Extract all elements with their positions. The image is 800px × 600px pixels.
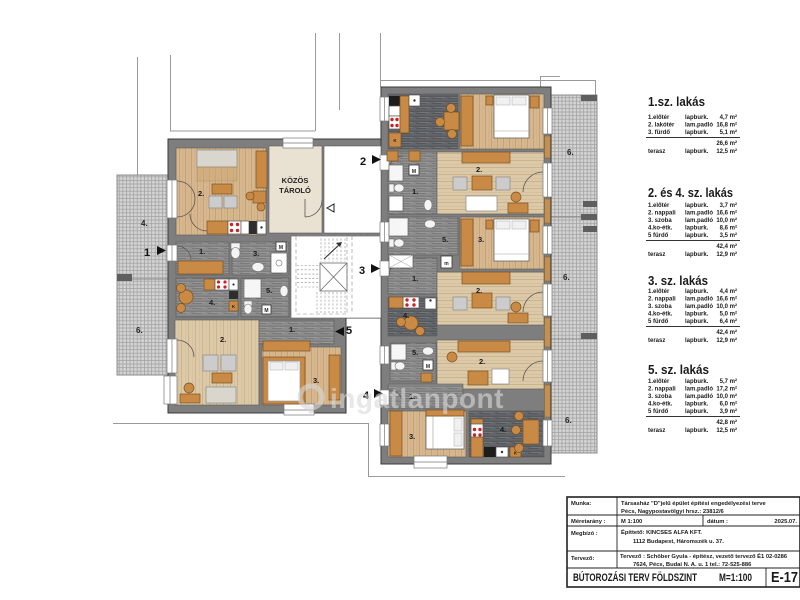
svg-text:26,6 m²: 26,6 m² [716,140,737,147]
svg-text:4.ko-étk.: 4.ko-étk. [648,312,673,318]
svg-text:3: 3 [359,265,365,277]
svg-text:Megbízó :: Megbízó : [571,531,598,537]
svg-text:lam.padló: lam.padló [685,218,713,224]
svg-text:5. sz. lakás: 5. sz. lakás [648,362,709,377]
svg-text:4.ko-étk.: 4.ko-étk. [648,402,673,408]
svg-text:3,5 m²: 3,5 m² [720,232,737,239]
svg-text:lapburk.: lapburk. [685,130,709,136]
svg-text:lapburk.: lapburk. [685,233,709,239]
svg-text:lapburk.: lapburk. [685,409,709,415]
svg-text:5 fürdő: 5 fürdő [648,319,669,325]
svg-text:5 fürdő: 5 fürdő [648,233,669,239]
svg-text:6,4 m²: 6,4 m² [720,318,737,325]
svg-text:lam.padló: lam.padló [685,304,713,310]
svg-text:3,9 m²: 3,9 m² [720,408,737,415]
svg-text:7624, Pécs, Budai N. A. u. 1: 7624, Pécs, Budai N. A. u. 1 tel.: 72-52… [633,562,752,568]
svg-text:lapburk.: lapburk. [685,289,709,295]
svg-text:lapburk.: lapburk. [685,252,709,258]
svg-text:1.sz. lakás: 1.sz. lakás [648,94,705,109]
svg-text:4.: 4. [500,425,506,434]
svg-text:10,0 m²: 10,0 m² [716,303,737,310]
svg-text:3.: 3. [478,235,484,244]
svg-text:lapburk.: lapburk. [685,428,709,434]
svg-text:5,1 m²: 5,1 m² [720,129,737,136]
svg-text:12,5 m²: 12,5 m² [716,427,737,434]
svg-text:ingatlanpont: ingatlanpont [330,383,504,414]
svg-text:lapburk.: lapburk. [685,338,709,344]
svg-text:6.: 6. [563,273,570,282]
svg-text:2.: 2. [476,165,482,174]
svg-text:M: M [264,308,268,314]
svg-text:5: 5 [346,325,352,337]
svg-text:KÖZÖS: KÖZÖS [282,176,309,185]
svg-text:lam.padló: lam.padló [685,387,713,393]
svg-text:2.: 2. [476,286,482,295]
svg-text:terasz: terasz [648,338,665,344]
svg-text:2. nappali: 2. nappali [648,297,676,303]
svg-text:3,7 m²: 3,7 m² [720,202,737,209]
svg-text:3. szoba: 3. szoba [648,304,672,310]
svg-text:Méretarány :: Méretarány : [571,519,606,525]
svg-text:10,0 m²: 10,0 m² [716,217,737,224]
svg-text:Munka:: Munka: [571,501,591,507]
svg-text:lapburk.: lapburk. [685,312,709,318]
svg-text:3. sz. lakás: 3. sz. lakás [648,273,708,288]
svg-text:4,7 m²: 4,7 m² [720,114,737,121]
svg-text:4,4 m²: 4,4 m² [720,288,737,295]
svg-text:42,4 m²: 42,4 m² [716,243,737,250]
svg-text:1.: 1. [289,325,295,334]
svg-text:2025.07.: 2025.07. [774,519,797,525]
svg-text:6,0 m²: 6,0 m² [720,401,737,408]
svg-text:1.előtér: 1.előtér [648,203,670,209]
svg-text:2. nappali: 2. nappali [648,211,676,217]
svg-text:2.: 2. [198,189,204,198]
svg-text:3. fürdő: 3. fürdő [648,130,670,136]
svg-text:12,9 m²: 12,9 m² [716,251,737,258]
svg-text:3.: 3. [409,432,415,441]
svg-text:4.: 4. [141,219,148,228]
svg-text:Tervező:: Tervező: [571,556,594,562]
svg-text:2.: 2. [220,335,226,344]
svg-text:10,0 m²: 10,0 m² [716,393,737,400]
svg-text:terasz: terasz [648,149,665,155]
svg-text:3. szoba: 3. szoba [648,218,672,224]
svg-text:TÁROLÓ: TÁROLÓ [279,186,311,195]
svg-text:1.előtér: 1.előtér [648,115,670,121]
svg-text:lapburk.: lapburk. [685,115,709,121]
svg-text:3.: 3. [253,249,259,258]
svg-text:lapburk.: lapburk. [685,203,709,209]
svg-text:Társasház "D"jelű épület építé: Társasház "D"jelű épület építési engedél… [621,501,766,507]
svg-text:2. nappali: 2. nappali [648,387,676,393]
svg-text:terasz: terasz [648,428,665,434]
svg-text:6.: 6. [565,416,572,425]
svg-text:3. szoba: 3. szoba [648,394,672,400]
svg-text:M 1:100: M 1:100 [621,519,642,525]
svg-text:16,6 m²: 16,6 m² [716,296,737,303]
svg-text:2. és 4. sz. lakás: 2. és 4. sz. lakás [648,185,733,200]
svg-text:5 fürdő: 5 fürdő [648,409,669,415]
svg-text:2: 2 [360,156,366,168]
svg-text:1.előtér: 1.előtér [648,289,670,295]
svg-text:5,7 m²: 5,7 m² [720,378,737,385]
svg-text:lapburk.: lapburk. [685,402,709,408]
svg-text:lam.padló: lam.padló [685,394,713,400]
svg-text:dátum :: dátum : [707,519,728,525]
svg-text:42,4 m²: 42,4 m² [716,329,737,336]
svg-text:5,0 m²: 5,0 m² [720,311,737,318]
svg-text:16,6 m²: 16,6 m² [716,210,737,217]
svg-text:lapburk.: lapburk. [685,319,709,325]
svg-text:3.: 3. [313,376,319,385]
svg-text:Építtető: KINCSES ALFA KFT.: Építtető: KINCSES ALFA KFT. [621,528,702,536]
svg-text:4.ko-étk.: 4.ko-étk. [648,226,673,232]
svg-text:M=1:100: M=1:100 [719,572,752,584]
svg-text:terasz: terasz [648,252,665,258]
svg-text:m: m [444,261,449,267]
svg-text:1.: 1. [199,247,205,256]
svg-text:16,8 m²: 16,8 m² [716,122,737,129]
svg-text:M: M [279,245,283,251]
svg-text:lapburk.: lapburk. [685,226,709,232]
svg-text:1.előtér: 1.előtér [648,379,670,385]
svg-text:5.: 5. [442,235,448,244]
svg-text:1.: 1. [412,187,418,196]
svg-text:5.: 5. [266,286,272,295]
svg-text:M: M [412,169,416,175]
svg-text:2.: 2. [479,357,485,366]
svg-text:lam.padló: lam.padló [685,123,713,129]
svg-text:Pécs, Nagypostavölgyi hrsz.: 2: Pécs, Nagypostavölgyi hrsz.: 23812/6 [621,509,725,515]
svg-text:1.: 1. [412,274,418,283]
svg-text:E-17: E-17 [771,570,798,586]
svg-text:8,6 m²: 8,6 m² [720,225,737,232]
svg-text:lapburk.: lapburk. [685,149,709,155]
svg-text:BÚTOROZÁSI TERV FÖLDSZINT: BÚTOROZÁSI TERV FÖLDSZINT [573,571,697,584]
svg-text:4.: 4. [403,311,409,320]
svg-text:M: M [426,364,430,370]
svg-text:42,8 m²: 42,8 m² [716,419,737,426]
svg-text:lapburk.: lapburk. [685,379,709,385]
svg-text:Tervező : Schöber Gyula - épít: Tervező : Schöber Gyula - építész, vezet… [620,552,788,560]
svg-text:4.: 4. [209,298,215,307]
svg-text:6.: 6. [567,148,574,157]
svg-text:17,2 m²: 17,2 m² [716,386,737,393]
svg-text:lam.padló: lam.padló [685,297,713,303]
svg-text:1112 Budapest, Háromszék u. 37: 1112 Budapest, Háromszék u. 37. [633,539,724,545]
svg-text:1: 1 [144,247,150,259]
svg-text:6.: 6. [136,326,143,335]
svg-text:12,5 m²: 12,5 m² [716,148,737,155]
svg-text:5.: 5. [412,348,418,357]
svg-text:12,9 m²: 12,9 m² [716,337,737,344]
svg-text:lam.padló: lam.padló [685,211,713,217]
svg-text:2. lakótér: 2. lakótér [648,123,675,129]
